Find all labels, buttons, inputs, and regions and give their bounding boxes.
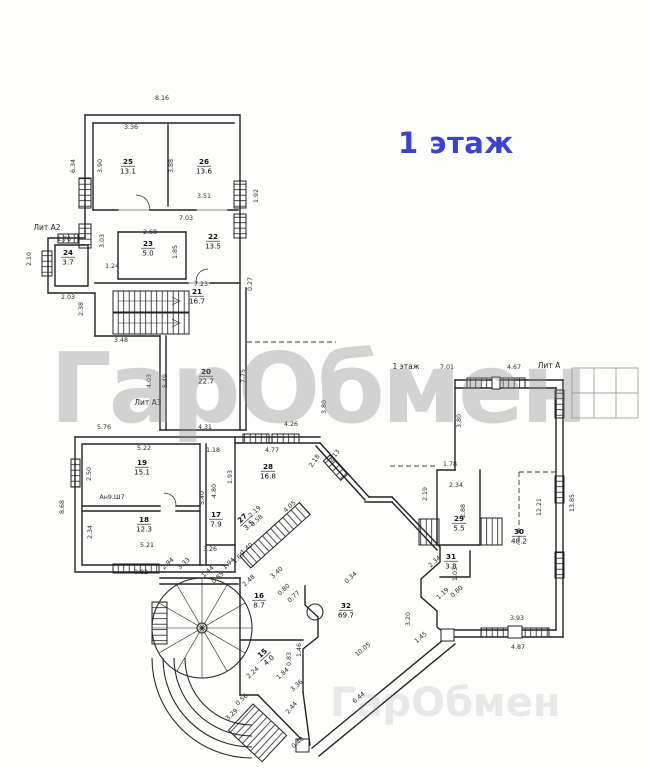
dimension-label: 3.20 bbox=[405, 612, 412, 626]
dimension-label: 1.78 bbox=[443, 461, 457, 468]
svg-text:48.2: 48.2 bbox=[511, 537, 527, 546]
dimension-label: 2.13 bbox=[328, 448, 342, 464]
dimension-label: 7.01 bbox=[440, 364, 454, 371]
dimension-label: 3.93 bbox=[510, 615, 524, 622]
svg-text:20: 20 bbox=[201, 367, 211, 376]
svg-text:19: 19 bbox=[137, 458, 147, 467]
svg-text:3.7: 3.7 bbox=[62, 258, 73, 267]
plan-windows bbox=[42, 178, 564, 638]
dimension-label: 4.77 bbox=[265, 447, 279, 454]
dimension-label: 5.49 bbox=[162, 374, 169, 388]
svg-text:22: 22 bbox=[208, 232, 218, 241]
svg-text:15.1: 15.1 bbox=[134, 468, 150, 477]
dimension-label: 1.76 bbox=[57, 236, 71, 243]
dimension-label: 0.34 bbox=[343, 571, 358, 586]
dimension-label: 5.21 bbox=[140, 542, 154, 549]
room-label: 295.5 bbox=[452, 514, 466, 533]
room-label: 243.7 bbox=[61, 248, 75, 267]
dimension-label: 4.67 bbox=[507, 364, 521, 371]
dimension-label: 12.21 bbox=[536, 498, 543, 516]
dimension-label: 2.94 bbox=[160, 557, 175, 572]
dimension-label: 3.80 bbox=[321, 400, 328, 414]
porch-steps bbox=[572, 368, 638, 418]
dimension-label: 8.16 bbox=[155, 95, 169, 102]
svg-text:3.8: 3.8 bbox=[445, 562, 457, 571]
dimension-label: 4.87 bbox=[511, 644, 525, 651]
svg-text:16.8: 16.8 bbox=[260, 472, 276, 481]
dimension-label: 2.38 bbox=[78, 302, 85, 316]
dimension-label: 4.03 bbox=[146, 374, 153, 388]
svg-text:13.6: 13.6 bbox=[196, 167, 212, 176]
svg-text:12.3: 12.3 bbox=[136, 525, 152, 534]
dimension-label: 5.22 bbox=[137, 445, 151, 452]
dimension-label: 2.44 bbox=[285, 700, 299, 715]
plan-stairs bbox=[113, 291, 502, 762]
room-label: 154.0 bbox=[254, 645, 277, 668]
dimension-label: 7.75 bbox=[240, 369, 247, 383]
dimension-label: 4.80 bbox=[211, 484, 218, 498]
dimension-label: 1.84 bbox=[275, 667, 290, 682]
dimension-label: 7.03 bbox=[179, 215, 193, 222]
dimension-label: 1.24 bbox=[105, 263, 119, 270]
svg-text:7.9: 7.9 bbox=[210, 520, 222, 529]
dimension-label: 1.92 bbox=[253, 189, 260, 203]
dimension-label: 2.24 bbox=[245, 666, 260, 681]
plan-walls bbox=[48, 115, 563, 756]
svg-text:69.7: 69.7 bbox=[338, 611, 354, 620]
svg-text:13.5: 13.5 bbox=[205, 242, 221, 251]
dimension-label: 5.40 bbox=[199, 491, 206, 505]
dimension-label: 3.03 bbox=[99, 234, 106, 248]
svg-text:30: 30 bbox=[514, 527, 524, 536]
dimension-label: 1.85 bbox=[172, 245, 179, 259]
svg-text:5.0: 5.0 bbox=[142, 249, 154, 258]
dimension-label: 0.83 bbox=[286, 652, 293, 666]
svg-text:18: 18 bbox=[139, 515, 149, 524]
svg-text:29: 29 bbox=[454, 514, 464, 523]
dimension-label: 6.44 bbox=[351, 691, 366, 705]
dimension-label: 3.29 bbox=[224, 708, 239, 723]
dimension-label: 2.18 bbox=[308, 453, 322, 469]
floor-title: 1 этаж bbox=[398, 126, 514, 160]
room-label: 2213.5 bbox=[205, 232, 221, 251]
spiral-staircase bbox=[152, 578, 252, 678]
room-label: 3048.2 bbox=[511, 527, 527, 546]
dimension-label: 3.36 bbox=[124, 124, 138, 131]
svg-text:13.1: 13.1 bbox=[120, 167, 136, 176]
column bbox=[307, 604, 323, 620]
dimension-label: Ан9.Ш7 bbox=[99, 494, 124, 501]
svg-text:31: 31 bbox=[446, 552, 456, 561]
dimension-label: 2.19 bbox=[422, 487, 429, 501]
floorplan-page: 8.163.366.343.903.883.517.031.920.271.76… bbox=[0, 0, 650, 768]
svg-text:26: 26 bbox=[199, 157, 209, 166]
dimension-label: 0.27 bbox=[247, 277, 254, 291]
dimension-label: 2.34 bbox=[87, 525, 94, 539]
building-label: Лит А bbox=[538, 361, 561, 370]
room-label: 2513.1 bbox=[120, 157, 136, 176]
dimension-label: 1.18 bbox=[206, 447, 220, 454]
building-label: Лит А2 bbox=[33, 223, 60, 232]
room-label: 168.7 bbox=[252, 591, 266, 610]
dimension-label: 2.68 bbox=[143, 229, 157, 236]
dimension-label: 2.48 bbox=[241, 574, 256, 589]
svg-text:16: 16 bbox=[254, 591, 264, 600]
dimension-label: 3.51 bbox=[197, 193, 211, 200]
svg-text:21: 21 bbox=[192, 287, 202, 296]
dimension-label: 4.26 bbox=[284, 421, 298, 428]
dimension-label: 5.76 bbox=[97, 424, 111, 431]
dimension-label: 3.36 bbox=[289, 679, 304, 694]
room-label: 177.9 bbox=[209, 510, 223, 529]
dimension-label: 2.10 bbox=[26, 252, 33, 266]
svg-text:24: 24 bbox=[63, 248, 73, 257]
room-label: 2613.6 bbox=[196, 157, 212, 176]
room-label: 1812.3 bbox=[136, 515, 152, 534]
dimension-label: 2.50 bbox=[86, 467, 93, 481]
dimension-label: 4.31 bbox=[198, 424, 212, 431]
dimension-label: 0.80 bbox=[276, 583, 291, 598]
dimension-label: 10.05 bbox=[354, 641, 372, 658]
svg-text:16.7: 16.7 bbox=[189, 297, 205, 306]
svg-text:23: 23 bbox=[143, 239, 153, 248]
room-label: 313.8 bbox=[444, 552, 458, 571]
svg-text:5.5: 5.5 bbox=[453, 524, 464, 533]
dimension-label: 3.40 bbox=[269, 566, 284, 581]
dimension-label: 3.90 bbox=[97, 159, 104, 173]
svg-text:25: 25 bbox=[123, 157, 133, 166]
svg-text:22.7: 22.7 bbox=[198, 377, 214, 386]
building-label: Лит А3 bbox=[134, 398, 161, 407]
dimension-label: 0.82 bbox=[134, 569, 148, 576]
dimension-label: 13.85 bbox=[569, 494, 576, 512]
dimension-labels: 8.163.366.343.903.883.517.031.920.271.76… bbox=[26, 95, 576, 750]
room-label: 2116.7 bbox=[189, 287, 205, 306]
dimension-label: 8.68 bbox=[59, 500, 66, 514]
room-label: 1915.1 bbox=[134, 458, 150, 477]
room-label: 2816.8 bbox=[260, 462, 276, 481]
dimension-label: 0.77 bbox=[286, 590, 301, 605]
room-label: 235.0 bbox=[141, 239, 155, 258]
dimension-label: 2.03 bbox=[61, 294, 75, 301]
svg-text:28: 28 bbox=[263, 462, 273, 471]
dimension-label: 6.34 bbox=[70, 159, 77, 173]
svg-text:32: 32 bbox=[341, 601, 351, 610]
dimension-label: 1.93 bbox=[227, 470, 234, 484]
dimension-label: 3.26 bbox=[203, 546, 217, 553]
dimension-label: 1.46 bbox=[296, 643, 303, 657]
dimension-label: 3.80 bbox=[456, 414, 463, 428]
svg-text:8.7: 8.7 bbox=[253, 601, 264, 610]
dimension-label: 3.48 bbox=[114, 337, 128, 344]
room-label: 3269.7 bbox=[338, 601, 354, 620]
dimension-label: 0.60 bbox=[449, 585, 464, 600]
room-label: 2022.7 bbox=[198, 367, 214, 386]
dimension-label: 3.88 bbox=[168, 159, 175, 173]
svg-text:17: 17 bbox=[211, 510, 221, 519]
dimension-label: 1.45 bbox=[413, 631, 428, 645]
floor-plan: 8.163.366.343.903.883.517.031.920.271.76… bbox=[0, 0, 650, 768]
building-label: 1 этаж bbox=[393, 362, 420, 371]
dimension-label: 3.33 bbox=[176, 557, 191, 572]
dimension-label: 2.34 bbox=[449, 482, 463, 489]
